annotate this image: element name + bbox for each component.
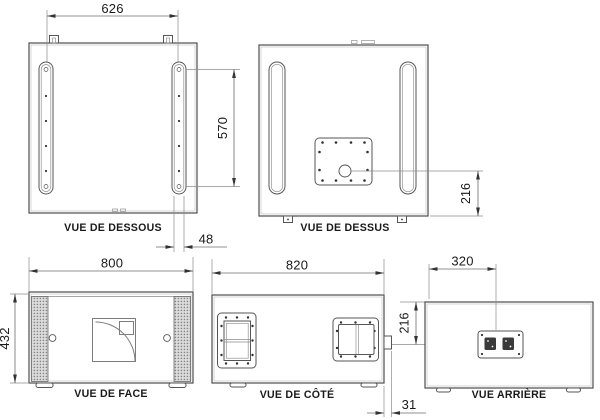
- dim-800-value: 800: [101, 256, 123, 271]
- dim-800: 800: [29, 256, 193, 292]
- front-foot-right: [169, 383, 186, 388]
- dim-820: 820: [212, 258, 384, 295]
- dim-320-value: 320: [451, 254, 473, 269]
- grille-left: [32, 297, 49, 382]
- slot-right: [400, 62, 416, 194]
- rail-right: [172, 62, 186, 194]
- view-bottom: VUE DE DESSOUS: [29, 36, 197, 235]
- slot-left: [269, 62, 285, 194]
- top-edge-detail: [352, 41, 375, 44]
- drawing-svg: VUE DE DESSOUS 626 570 48: [0, 0, 600, 420]
- bottom-view-top-tabs: [50, 36, 173, 44]
- dim-31-value: 31: [402, 397, 417, 412]
- speakon-connector-right: [503, 338, 515, 351]
- label-vue-de-face: VUE DE FACE: [74, 388, 147, 400]
- side-handle-right: [333, 318, 379, 361]
- side-handle-left: [218, 313, 257, 368]
- view-front: VUE DE FACE: [29, 292, 193, 400]
- connector-plate: [478, 331, 523, 358]
- dim-432: 432: [0, 294, 28, 383]
- front-foot-left: [36, 383, 53, 388]
- pole-mount-plate: [315, 138, 372, 185]
- label-vue-de-dessus: VUE DE DESSUS: [300, 222, 389, 234]
- rear-foot-left: [437, 388, 451, 392]
- speakon-connector-left: [485, 338, 497, 351]
- label-vue-de-cote: VUE DE CÔTÉ: [260, 388, 335, 401]
- dim-432-value: 432: [0, 327, 12, 349]
- connector-tab: [384, 336, 392, 349]
- dim-216-top-value: 216: [459, 183, 473, 204]
- dim-570-value: 570: [215, 117, 230, 139]
- view-top: VUE DE DESSUS: [259, 41, 428, 235]
- view-rear: VUE ARRIÈRE: [425, 302, 593, 401]
- side-foot-left: [230, 383, 246, 387]
- rail-left: [39, 62, 53, 194]
- dim-216-rear-value: 216: [398, 313, 412, 334]
- label-vue-de-dessous: VUE DE DESSOUS: [64, 222, 162, 234]
- side-foot-right: [361, 383, 377, 387]
- technical-drawing-page: VUE DE DESSOUS 626 570 48: [0, 0, 600, 420]
- dim-48-value: 48: [199, 232, 214, 247]
- grille-right: [174, 297, 191, 382]
- label-vue-arriere: VUE ARRIÈRE: [472, 388, 547, 401]
- view-side: VUE DE CÔTÉ: [212, 295, 392, 401]
- dim-820-value: 820: [286, 258, 308, 273]
- dim-626-value: 626: [101, 1, 123, 16]
- rear-foot-right: [567, 388, 581, 392]
